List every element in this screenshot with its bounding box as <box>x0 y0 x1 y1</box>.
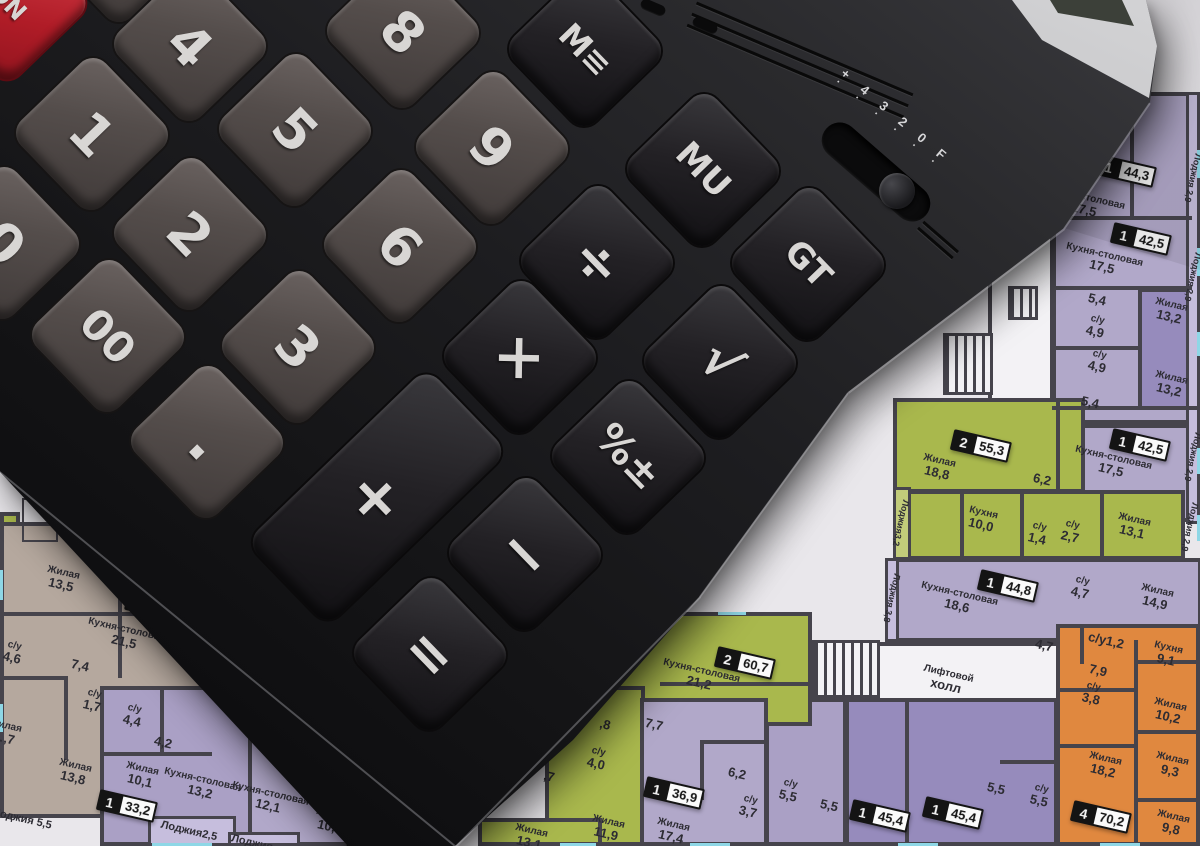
key-label: 1 <box>56 99 127 170</box>
key-label: ON <box>0 0 32 26</box>
photo-calculator-on-floorplans: Кухня-столовая17,5Кухня-столовая17,55,4с… <box>0 0 1200 846</box>
key-label: . <box>174 409 240 474</box>
key-label: 0 <box>0 208 39 279</box>
key-label: 5 <box>259 95 330 166</box>
key-label: × <box>480 318 559 397</box>
calculator: + 4 3 2 0 F · · · · · · ON748M≡159MU026÷… <box>0 0 1200 846</box>
key-label: = <box>390 615 469 694</box>
key-label: 8 <box>367 0 438 67</box>
key-label: GT <box>776 232 840 296</box>
key-label: %± <box>586 415 670 500</box>
key-label: 9 <box>456 113 527 184</box>
key-label: MU <box>667 134 738 206</box>
key-label: + <box>333 453 422 541</box>
mode-slider-knob[interactable] <box>879 173 915 209</box>
key-label: 3 <box>262 312 333 383</box>
key-label: − <box>482 512 567 597</box>
key-label: 2 <box>154 199 225 270</box>
key-label: √ <box>688 330 753 394</box>
key-label: M≡ <box>551 16 619 85</box>
key-label: 00 <box>70 298 146 374</box>
key-label: 6 <box>364 211 435 282</box>
key-label: 4 <box>154 10 225 81</box>
key-label: ÷ <box>557 223 636 302</box>
